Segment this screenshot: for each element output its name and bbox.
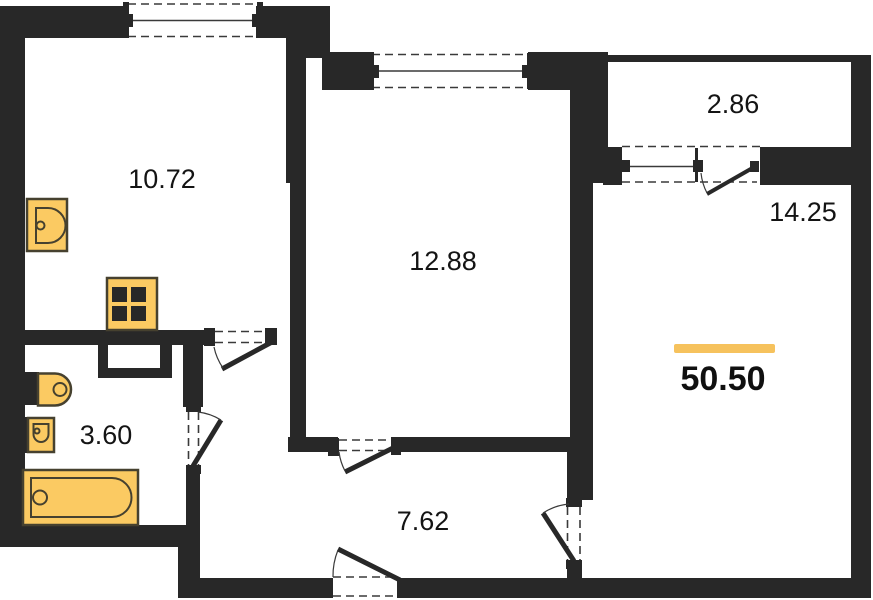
wall	[0, 6, 25, 547]
toilet-icon	[22, 372, 71, 406]
wall	[286, 14, 330, 58]
bathroom-door	[186, 403, 221, 474]
balcony-area-label: 2.86	[707, 89, 760, 120]
wall	[290, 183, 306, 437]
wall	[600, 55, 851, 62]
kitchen-area-label: 10.72	[128, 164, 196, 195]
wall	[178, 525, 200, 598]
duct-shaft	[98, 343, 172, 378]
wall	[603, 147, 622, 185]
wall	[200, 578, 332, 598]
entrance-door	[322, 549, 407, 598]
balcony-door	[701, 166, 756, 194]
stove-icon	[107, 278, 157, 330]
wall	[570, 183, 593, 437]
total-area-label: 50.50	[680, 360, 765, 399]
living-room-window	[368, 53, 533, 89]
wall	[0, 330, 214, 345]
wall	[286, 52, 306, 183]
wall	[186, 474, 200, 525]
kitchen-door	[204, 328, 277, 369]
wall	[322, 52, 374, 90]
total-area-accent-bar	[674, 344, 775, 353]
wall	[183, 345, 203, 407]
floor-plan: 10.72 12.88 2.86 14.25 3.60 7.62 50.50	[0, 0, 873, 600]
wall	[398, 578, 851, 598]
wall	[851, 55, 871, 598]
wall	[396, 437, 572, 452]
bedroom-area-label: 14.25	[769, 197, 837, 228]
wall	[0, 525, 178, 547]
bathroom-area-label: 3.60	[80, 420, 133, 451]
wall	[528, 52, 608, 90]
kitchen-window	[123, 2, 263, 38]
bedroom-door	[543, 498, 582, 569]
washbasin-icon	[21, 417, 54, 453]
hallway-area-label: 7.62	[397, 506, 450, 537]
kitchen-sink-icon	[27, 199, 67, 251]
bathtub-icon	[23, 470, 138, 525]
wall	[760, 147, 851, 185]
wall	[567, 437, 593, 500]
living-room-area-label: 12.88	[409, 246, 477, 277]
wall	[570, 90, 608, 183]
living-room-door	[328, 437, 401, 472]
